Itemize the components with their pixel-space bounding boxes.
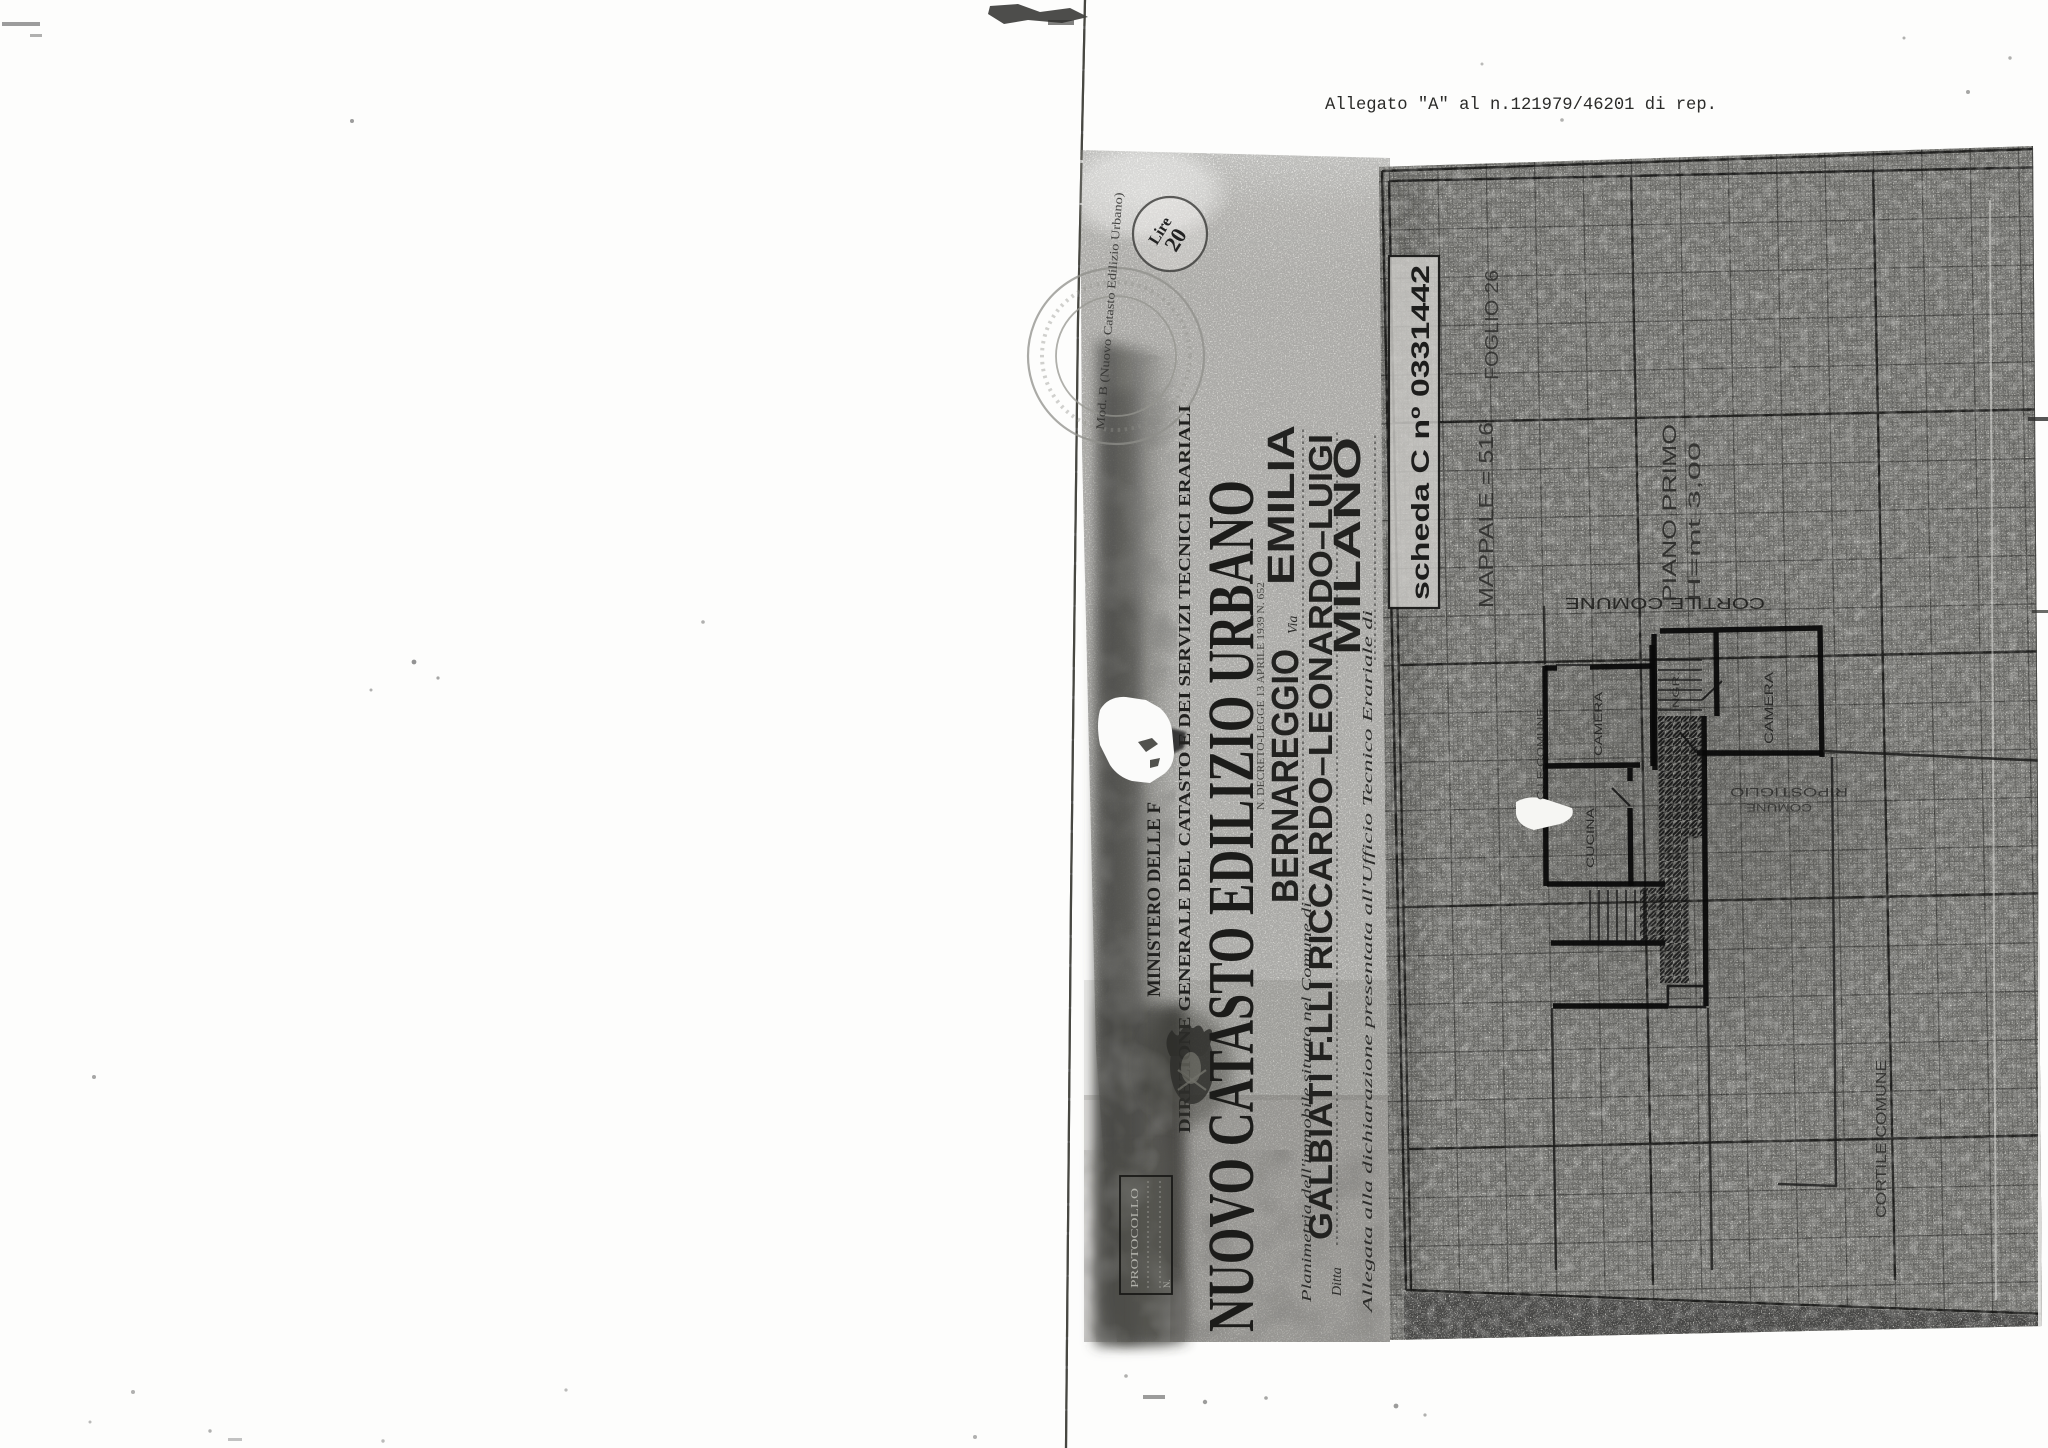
svg-text:FOGLIO 26: FOGLIO 26 — [1482, 270, 1502, 380]
svg-text:PROTOCOLLO: PROTOCOLLO — [1130, 1188, 1141, 1288]
svg-text:H=mt 3,00: H=mt 3,00 — [1685, 442, 1704, 602]
svg-text:CORTILE COMUNE: CORTILE COMUNE — [1565, 594, 1765, 611]
svg-text:MINISTERO DELLE F: MINISTERO DELLE F — [1144, 802, 1165, 997]
svg-text:CUCINA: CUCINA — [1585, 807, 1597, 868]
svg-text:RIPOSTIGLIO: RIPOSTIGLIO — [1730, 785, 1848, 799]
svg-text:Allegata alla dichiarazione pr: Allegata alla dichiarazione presentata a… — [1361, 610, 1376, 1314]
svg-text:MILANO: MILANO — [1327, 437, 1369, 655]
svg-text:EMILIA: EMILIA — [1261, 425, 1303, 585]
svg-text:PIANO PRIMO: PIANO PRIMO — [1660, 424, 1681, 602]
svg-text:COMUNE: COMUNE — [1746, 801, 1812, 813]
svg-text:MAPPALE = 516: MAPPALE = 516 — [1476, 422, 1498, 608]
svg-text:Via: Via — [1286, 616, 1301, 634]
svg-text:Ditta: Ditta — [1330, 1267, 1345, 1297]
svg-text:BERNAREGGIO: BERNAREGGIO — [1265, 649, 1307, 903]
svg-text:C.LE COMUNE: C.LE COMUNE — [1536, 708, 1547, 800]
svg-text:N.: N. — [1162, 1279, 1172, 1288]
svg-text:CAMERA: CAMERA — [1593, 691, 1605, 756]
svg-text:INGR.: INGR. — [1671, 672, 1681, 712]
svg-text:CAMERA: CAMERA — [1762, 672, 1776, 744]
svg-text:Allegato "A" al n.121979/46201: Allegato "A" al n.121979/46201 di rep. — [1325, 95, 1717, 115]
svg-text:CORTILE COMUNE: CORTILE COMUNE — [1873, 1060, 1890, 1218]
svg-text:scheda C nº 0331442: scheda C nº 0331442 — [1407, 265, 1435, 600]
